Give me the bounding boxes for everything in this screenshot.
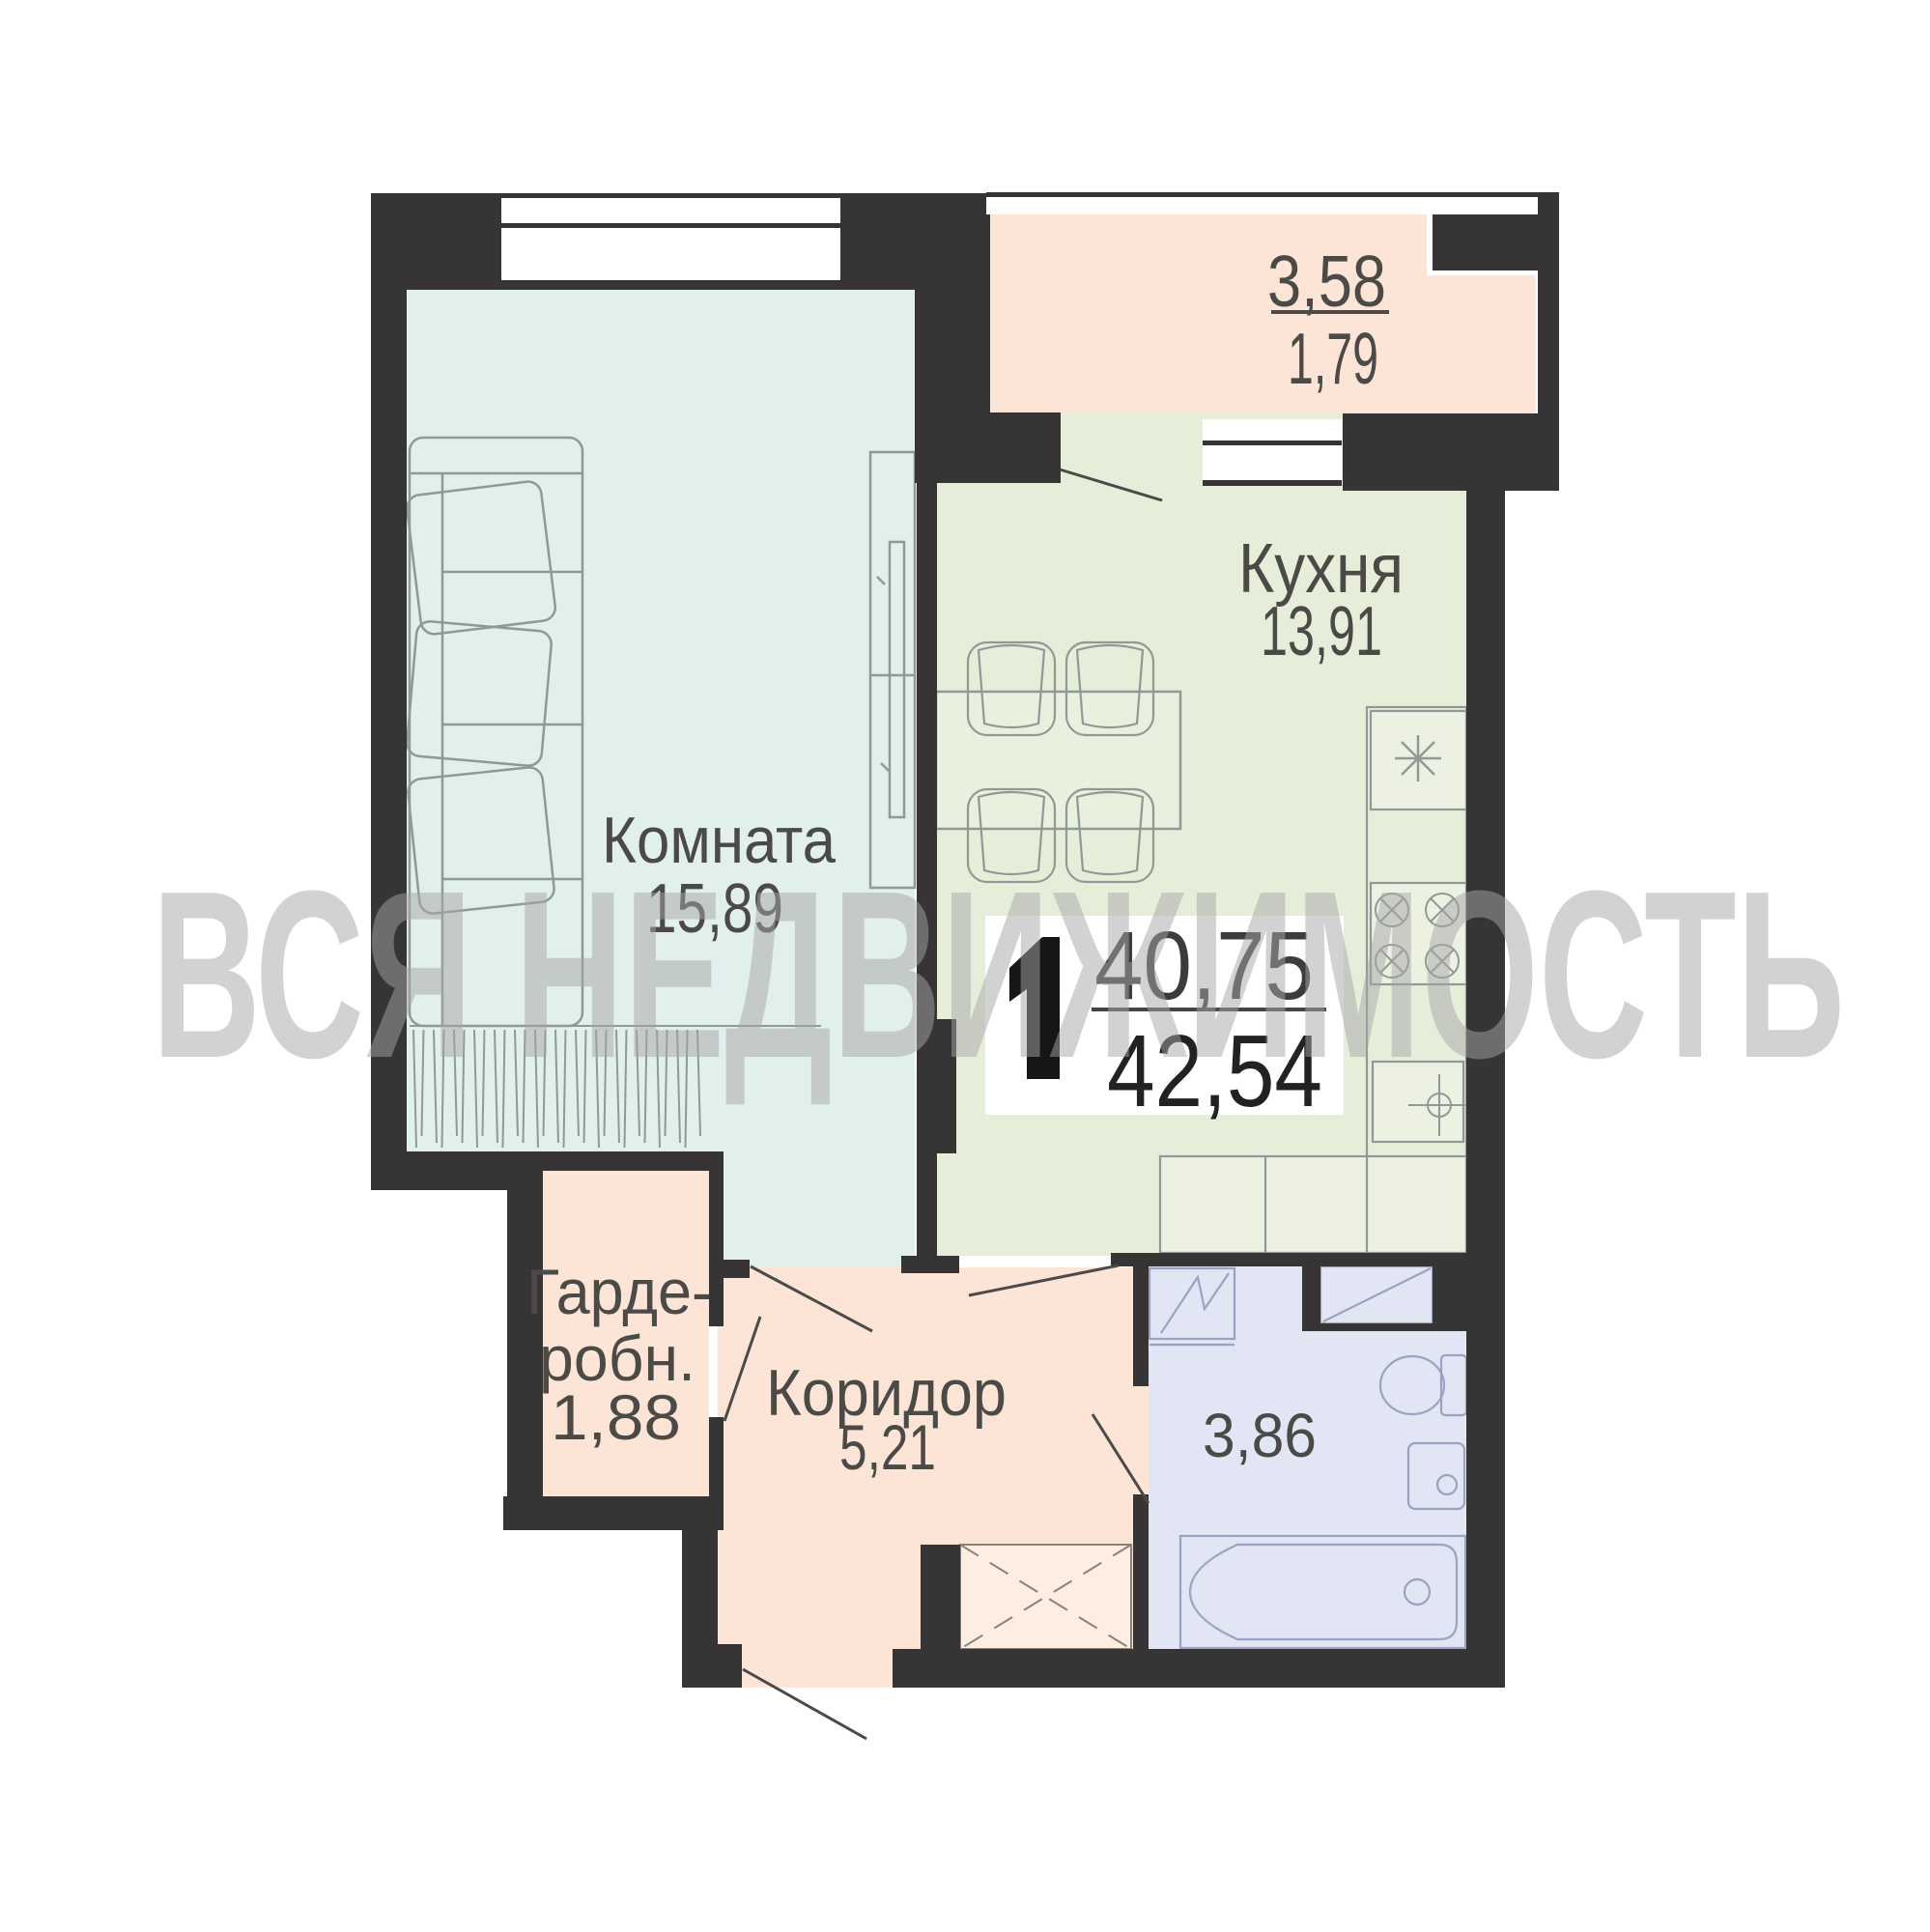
svg-text:1,88: 1,88 bbox=[551, 1381, 681, 1453]
svg-text:5,21: 5,21 bbox=[839, 1411, 936, 1483]
svg-text:3,86: 3,86 bbox=[1203, 1401, 1317, 1470]
svg-text:ВСЯ НЕДВИЖИМОСТЬ: ВСЯ НЕДВИЖИМОСТЬ bbox=[152, 841, 1845, 1108]
svg-text:13,91: 13,91 bbox=[1261, 593, 1382, 670]
svg-text:3,58: 3,58 bbox=[1267, 241, 1386, 322]
svg-text:1,79: 1,79 bbox=[1288, 318, 1378, 399]
svg-text:Гарде-: Гарде- bbox=[526, 1256, 712, 1327]
